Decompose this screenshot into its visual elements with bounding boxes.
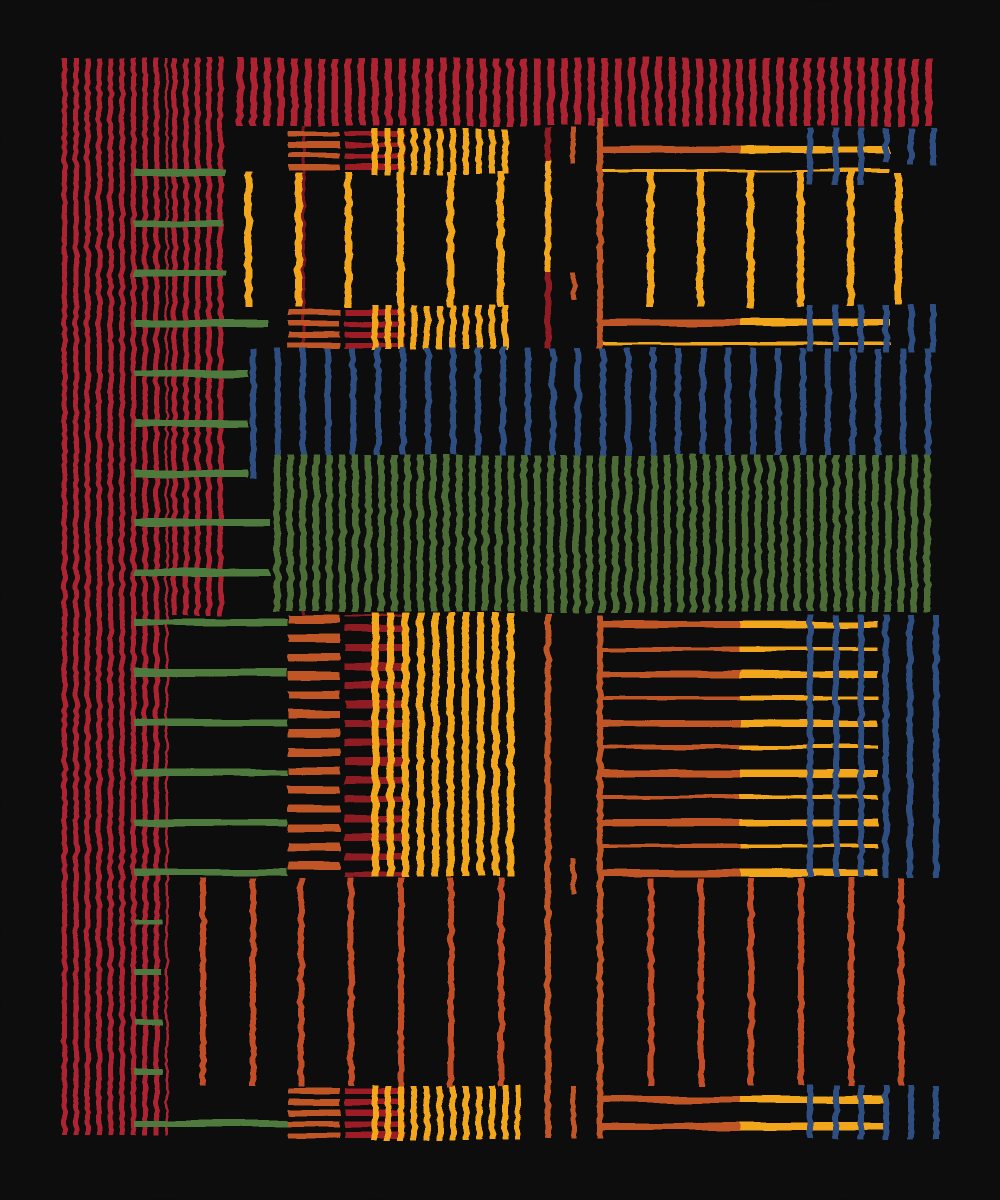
yellow-vline xyxy=(747,172,754,307)
green-tick xyxy=(134,1120,288,1127)
center-line-a xyxy=(545,613,551,1138)
bottomband-comb-orange-row xyxy=(597,1096,740,1103)
yellow-vline xyxy=(497,172,504,307)
blue-dash xyxy=(858,128,864,184)
green-tick xyxy=(134,719,287,726)
center-line-b xyxy=(571,1085,576,1138)
midleft-orange-hstripes xyxy=(288,615,340,877)
green-tick xyxy=(134,569,270,576)
bottomband-comb-orange-row xyxy=(597,1123,740,1130)
yellow-vline xyxy=(895,172,902,305)
green-tick xyxy=(134,1019,162,1025)
yellow-vline xyxy=(847,172,854,307)
band2-comb-orange-row xyxy=(597,319,740,326)
artwork-canvas xyxy=(0,0,1000,1200)
blue-dash xyxy=(930,305,936,352)
midright-comb-orange-row xyxy=(597,770,740,777)
center-line-c xyxy=(597,615,603,1138)
top-red-band xyxy=(237,58,935,126)
midright-comb-orange-row xyxy=(597,671,740,678)
green-stripe-block xyxy=(274,455,933,612)
yellow-vline xyxy=(647,172,654,307)
blue-dash xyxy=(858,305,864,352)
yellow-vline xyxy=(397,172,404,307)
green-tick xyxy=(134,969,162,975)
yellow-vline xyxy=(697,172,704,307)
center-line-a xyxy=(545,128,551,162)
midright-comb-orange-row xyxy=(597,621,740,628)
band1-comb-yellow-row xyxy=(740,146,890,153)
yellow-vline xyxy=(295,172,302,307)
midleft-yellow-vstripes xyxy=(372,613,520,877)
midright-comb-orange-row xyxy=(597,696,740,700)
blue-vline xyxy=(833,615,839,878)
band2-comb-thin-row xyxy=(597,342,890,345)
left-red-column-secondary xyxy=(172,58,229,615)
midright-comb-orange-row xyxy=(597,844,740,848)
midright-comb-orange-row xyxy=(597,869,740,877)
blue-dash xyxy=(908,1085,914,1139)
bottomband-yellow-vstripes xyxy=(372,1085,520,1140)
rust-vline xyxy=(448,878,454,1086)
blue-dash xyxy=(833,305,839,352)
blue-dash xyxy=(908,128,914,164)
yellow-vline xyxy=(245,172,252,307)
midright-comb-orange-row xyxy=(597,795,740,799)
blue-dash xyxy=(807,128,813,184)
band2-yellow-vstripes xyxy=(372,305,515,350)
blue-stripe-band xyxy=(250,348,932,455)
rust-vline xyxy=(200,878,206,1086)
band1-orange-hstripes xyxy=(288,131,340,172)
band1-comb-orange-row xyxy=(597,146,740,153)
center-line-c xyxy=(597,118,603,348)
blue-vline xyxy=(807,615,813,878)
band2-comb-yellow-row xyxy=(740,319,890,326)
blue-dash xyxy=(883,1085,889,1139)
rust-vline xyxy=(748,878,754,1086)
yellow-vline xyxy=(447,172,454,307)
green-tick xyxy=(134,819,287,826)
green-tick xyxy=(134,420,248,427)
green-tick xyxy=(134,1069,162,1075)
bottomband-orange-hstripes xyxy=(288,1088,340,1138)
rust-vline xyxy=(848,878,854,1086)
rust-vline xyxy=(498,878,504,1086)
green-tick xyxy=(134,470,248,477)
rust-vline xyxy=(698,878,704,1086)
blue-dash xyxy=(858,1085,864,1139)
rust-vline xyxy=(250,878,256,1086)
blue-dash xyxy=(883,128,889,162)
green-tick xyxy=(134,769,287,776)
center-line-b xyxy=(571,858,576,895)
band1-yellow-vstripes xyxy=(372,128,515,175)
blue-dash xyxy=(930,128,936,166)
blue-dash xyxy=(807,305,813,352)
blue-dash xyxy=(883,305,889,352)
bottomband-comb-yellow-row xyxy=(740,1123,888,1130)
midright-comb-orange-row xyxy=(597,647,740,651)
green-tick xyxy=(134,320,268,327)
center-line-b xyxy=(571,272,576,300)
rust-vline xyxy=(798,878,804,1086)
midright-comb-orange-row xyxy=(597,745,740,749)
blue-vline xyxy=(883,615,889,878)
blue-vline xyxy=(933,615,939,878)
green-tick xyxy=(134,370,248,377)
yellow-vline xyxy=(345,172,352,307)
rust-vline xyxy=(348,878,354,1086)
blue-vline xyxy=(858,615,864,878)
blue-dash xyxy=(833,1085,839,1139)
midright-comb-orange-row xyxy=(597,819,740,826)
green-tick xyxy=(134,869,287,876)
green-tick xyxy=(134,220,222,227)
blue-band-first-line xyxy=(250,348,256,478)
band2-orange-hstripes xyxy=(288,310,340,348)
blue-dash xyxy=(807,1085,813,1139)
yellow-vline xyxy=(797,172,804,307)
green-tick xyxy=(134,519,270,526)
blue-dash xyxy=(908,305,914,352)
center-line-a xyxy=(545,160,551,274)
bottomband-comb-yellow-row xyxy=(740,1096,888,1103)
blue-dash xyxy=(833,128,839,184)
rust-vline xyxy=(398,878,404,1086)
blue-dash xyxy=(933,1085,939,1139)
rust-vline xyxy=(648,878,654,1086)
midleft-red-hstripes xyxy=(345,615,372,877)
green-tick xyxy=(134,619,287,626)
green-tick xyxy=(134,169,226,176)
rust-vline xyxy=(298,878,304,1086)
green-tick xyxy=(134,270,226,277)
green-tick xyxy=(134,919,162,925)
midright-comb-orange-row xyxy=(597,720,740,727)
rust-vline xyxy=(898,878,904,1086)
blue-vline xyxy=(907,615,913,878)
center-line-b xyxy=(571,128,576,164)
green-tick xyxy=(134,669,287,676)
center-line-a xyxy=(545,272,551,348)
